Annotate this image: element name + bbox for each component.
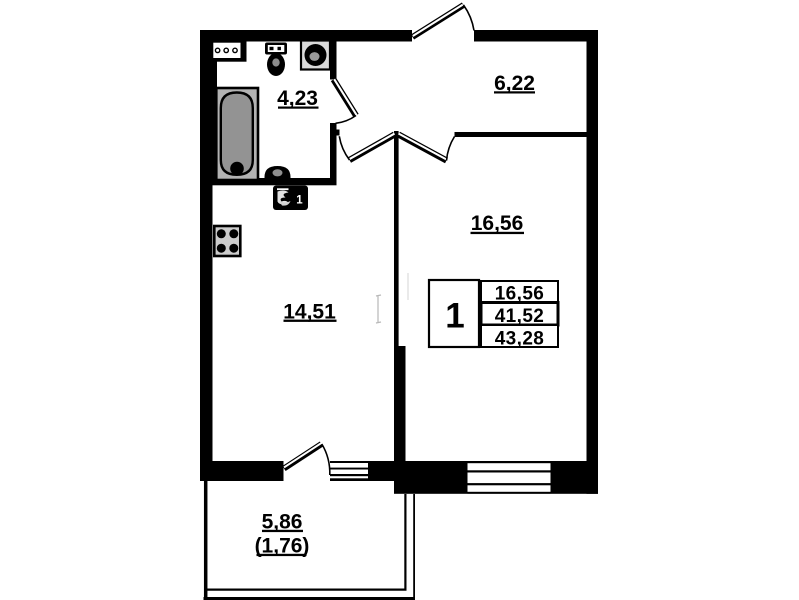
svg-text:1: 1 bbox=[445, 297, 464, 336]
svg-text:41,52: 41,52 bbox=[495, 306, 545, 327]
svg-text:16,56: 16,56 bbox=[471, 212, 524, 235]
svg-text:1: 1 bbox=[296, 195, 303, 207]
svg-text:43,28: 43,28 bbox=[495, 329, 545, 350]
